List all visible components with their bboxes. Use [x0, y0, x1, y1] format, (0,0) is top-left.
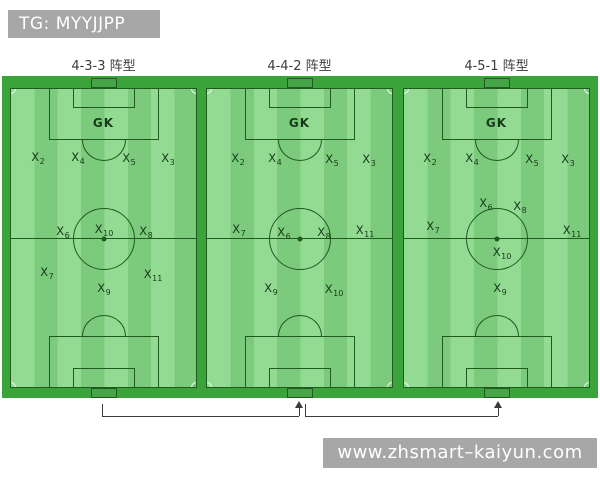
diagram-canvas: TG: MYYJJPP 4-3-3 阵型 4-4-2 阵型 4-5-1 阵型 G…: [0, 0, 600, 480]
goal-top-icon: [287, 78, 313, 88]
player-label-x5: X5: [122, 153, 135, 167]
goal-bottom-icon: [287, 388, 313, 398]
corner-arc: [403, 88, 409, 94]
player-label-x10: X10: [493, 247, 512, 261]
player-label-x10: X10: [95, 224, 114, 238]
gk-label: GK: [289, 116, 310, 130]
player-label-x11: X11: [356, 225, 375, 239]
transition-arrow-433-to-442: [102, 404, 299, 417]
penalty-arc-bottom: [82, 315, 126, 336]
player-label-x6: X6: [277, 227, 290, 241]
goal-area-bottom: [73, 368, 135, 388]
watermark-tg: TG: MYYJJPP: [8, 10, 160, 38]
penalty-arc-top: [278, 140, 322, 161]
pitches-band: GK X2X4X5X3X6X10X8X7X11X9 GK: [2, 76, 598, 398]
player-label-x4: X4: [465, 153, 478, 167]
player-label-x2: X2: [31, 152, 44, 166]
player-label-x5: X5: [525, 154, 538, 168]
pitch-surface: GK X2X4X5X3X7X6X8X11X9X10: [206, 88, 393, 388]
corner-arc: [206, 88, 212, 94]
field-title-442: 4-4-2 阵型: [206, 55, 393, 74]
player-label-x11: X11: [563, 225, 582, 239]
field-title-433: 4-3-3 阵型: [10, 55, 197, 74]
center-spot: [297, 237, 302, 242]
player-label-x3: X3: [561, 154, 574, 168]
player-label-x6: X6: [56, 226, 69, 240]
player-label-x3: X3: [161, 153, 174, 167]
player-label-x6: X6: [479, 198, 492, 212]
corner-arc: [584, 88, 590, 94]
goal-area-bottom: [269, 368, 331, 388]
penalty-arc-top: [475, 140, 519, 161]
player-label-x9: X9: [493, 283, 506, 297]
player-label-x5: X5: [325, 154, 338, 168]
pitch-surface: GK X2X4X5X3X6X8X7X11X10X9: [403, 88, 590, 388]
corner-arc: [387, 382, 393, 388]
player-label-x8: X8: [139, 226, 152, 240]
field-title-451: 4-5-1 阵型: [403, 55, 590, 74]
gk-label: GK: [93, 116, 114, 130]
player-label-x8: X8: [317, 227, 330, 241]
corner-arc: [10, 382, 16, 388]
gk-label: GK: [486, 116, 507, 130]
corner-arc: [191, 88, 197, 94]
player-label-x10: X10: [325, 284, 344, 298]
player-label-x7: X7: [426, 221, 439, 235]
player-label-x4: X4: [268, 153, 281, 167]
player-label-x9: X9: [264, 283, 277, 297]
up-arrow-icon: [498, 404, 500, 416]
corner-arc: [10, 88, 16, 94]
goal-area-top: [73, 88, 135, 108]
goal-area-top: [269, 88, 331, 108]
penalty-arc-bottom: [278, 315, 322, 336]
center-spot: [494, 237, 499, 242]
player-label-x9: X9: [97, 283, 110, 297]
goal-bottom-icon: [91, 388, 117, 398]
corner-arc: [584, 382, 590, 388]
player-label-x7: X7: [40, 267, 53, 281]
goal-top-icon: [484, 78, 510, 88]
player-label-x2: X2: [423, 153, 436, 167]
penalty-arc-top: [82, 140, 126, 161]
pitch-surface: GK X2X4X5X3X6X10X8X7X11X9: [10, 88, 197, 388]
goal-bottom-icon: [484, 388, 510, 398]
goal-area-top: [466, 88, 528, 108]
corner-arc: [403, 382, 409, 388]
corner-arc: [206, 382, 212, 388]
goal-top-icon: [91, 78, 117, 88]
player-label-x3: X3: [362, 154, 375, 168]
watermark-site: www.zhsmart–kaiyun.com: [323, 438, 597, 468]
pitch-433: GK X2X4X5X3X6X10X8X7X11X9: [10, 76, 197, 398]
pitch-451: GK X2X4X5X3X6X8X7X11X10X9: [403, 76, 590, 398]
up-arrow-icon: [299, 404, 301, 416]
player-label-x7: X7: [232, 224, 245, 238]
player-label-x11: X11: [144, 269, 163, 283]
penalty-arc-bottom: [475, 315, 519, 336]
corner-arc: [387, 88, 393, 94]
pitch-442: GK X2X4X5X3X7X6X8X11X9X10: [206, 76, 393, 398]
corner-arc: [191, 382, 197, 388]
player-label-x4: X4: [71, 152, 84, 166]
goal-area-bottom: [466, 368, 528, 388]
transition-arrow-442-to-451: [305, 404, 498, 417]
player-label-x8: X8: [513, 201, 526, 215]
player-label-x2: X2: [231, 153, 244, 167]
